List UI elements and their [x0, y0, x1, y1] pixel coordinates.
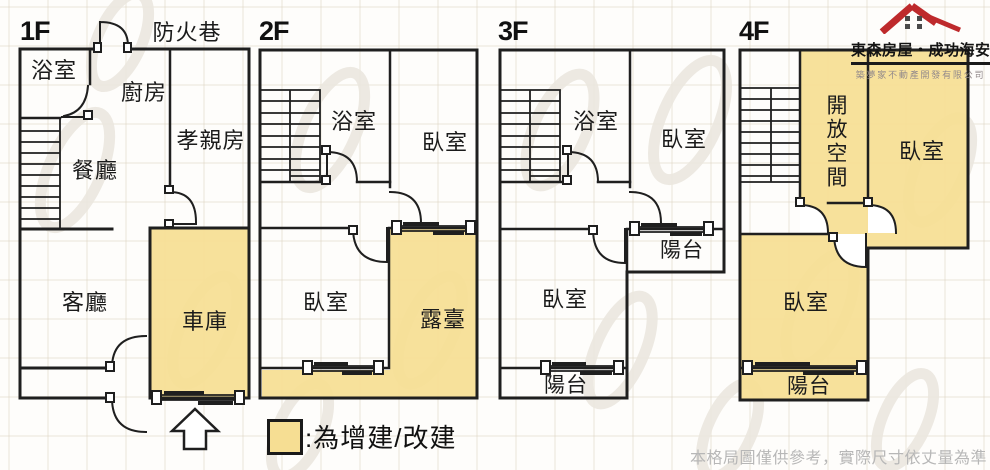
room-label-bedroom-3f-upper: 臥室: [661, 122, 707, 154]
door: [165, 186, 196, 227]
room-label-living-1f: 客廳: [62, 285, 108, 317]
door: [349, 226, 387, 262]
brand-title: 東森房屋・成功海安: [851, 39, 990, 65]
room-label-bathroom-3f: 浴室: [573, 104, 619, 136]
room-label-bedroom-4f-lower: 臥室: [783, 285, 829, 317]
door: [94, 22, 131, 52]
floor-label-4f: 4F: [739, 16, 769, 47]
room-label-balcony-3f-bottom: 陽台: [544, 369, 588, 399]
room-label-balcony-4f: 陽台: [787, 370, 831, 400]
outer-walls: [500, 50, 724, 398]
disclaimer-text: 本格局圖僅供參考，實際尺寸依丈量為準: [690, 444, 987, 468]
floor-plan-drawing: [0, 0, 990, 470]
highlight-swatch: [267, 419, 303, 455]
floor-plan-canvas: 1F 2F 3F 4F 防火巷 浴室 廚房 孝親房 餐廳 客廳 車庫 浴室 臥室…: [0, 0, 990, 470]
room-label-open-space-4f: 開放空間: [820, 94, 850, 190]
room-label-bedroom-2f-lower: 臥室: [303, 285, 349, 317]
fire-lane-label: 防火巷: [152, 15, 221, 47]
entrance-arrow-icon: [172, 409, 218, 449]
room-label-bedroom-4f-right: 臥室: [899, 134, 945, 166]
brand-subtitle: 築夢家不動產開發有限公司: [851, 68, 990, 81]
door: [630, 192, 661, 223]
room-label-parents-room-1f: 孝親房: [176, 123, 245, 155]
door: [106, 336, 146, 432]
floor-label-2f: 2F: [259, 16, 289, 47]
door: [62, 86, 92, 119]
stairs: [500, 90, 560, 182]
floor-label-1f: 1F: [20, 16, 50, 47]
floor-3f-plan: [500, 50, 724, 398]
room-label-kitchen-1f: 廚房: [121, 75, 167, 107]
stairs: [740, 88, 800, 182]
legend: :為增建/改建: [267, 418, 456, 455]
room-label-terrace-2f: 露臺: [420, 302, 466, 334]
legend-label: :為增建/改建: [305, 418, 456, 455]
room-label-dining-1f: 餐廳: [72, 153, 118, 185]
room-label-bathroom-2f: 浴室: [331, 104, 377, 136]
room-label-balcony-3f-right: 陽台: [660, 234, 704, 264]
door: [390, 192, 421, 223]
room-label-bathroom-1f: 浴室: [31, 53, 77, 85]
brand-logo: 東森房屋・成功海安 築夢家不動產開發有限公司: [851, 2, 990, 81]
door: [589, 226, 625, 263]
room-label-bedroom-2f-upper: 臥室: [422, 125, 468, 157]
floor-4f-plan: [740, 50, 968, 400]
red-roof-house-icon: [879, 2, 963, 34]
floor-label-3f: 3F: [498, 16, 528, 47]
room-label-bedroom-3f-lower: 臥室: [542, 282, 588, 314]
room-label-garage-1f: 車庫: [182, 304, 228, 336]
